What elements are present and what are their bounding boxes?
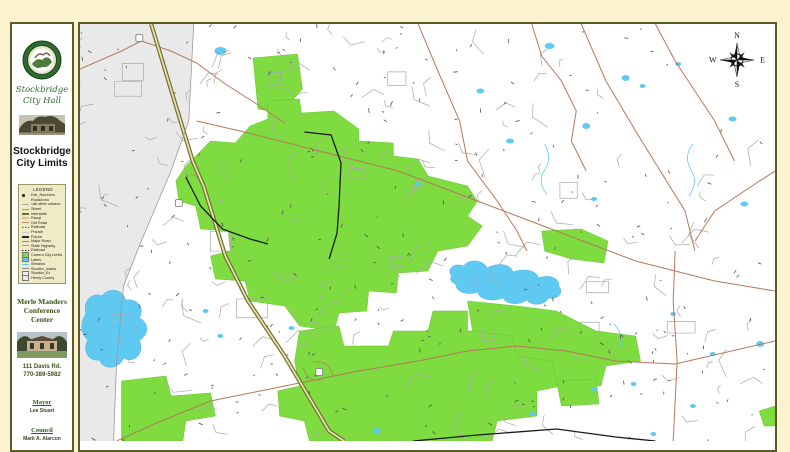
- pond: [582, 123, 590, 129]
- legend-label: Railroad: [31, 248, 45, 252]
- pond: [530, 412, 536, 416]
- legend-symbol-line-icon: [22, 222, 29, 223]
- pond: [729, 117, 737, 122]
- legend-label: Current City Limits: [31, 253, 62, 257]
- pond: [640, 84, 646, 88]
- interstate-shield-icon: [136, 35, 143, 42]
- legend-label: Streams: [31, 262, 45, 266]
- legend-symbol-dash-icon: [22, 250, 29, 251]
- interstate-shield-icon: [316, 369, 323, 376]
- legend-label: Ramp: [31, 216, 41, 220]
- venue-address: 111 Davis Rd. 770-389-5982: [23, 363, 61, 379]
- pond: [203, 309, 209, 313]
- compass-south-label: S: [735, 80, 739, 89]
- venue-name: Merle Manders Conference Center: [12, 297, 72, 324]
- legend-symbol-line-icon: [22, 245, 29, 246]
- legend-symbol-line-icon: [22, 264, 29, 265]
- pond: [214, 47, 226, 55]
- official-mayor: Mayor Lee Stuart: [30, 399, 54, 414]
- legend-symbol-line-icon: [22, 204, 29, 205]
- pond: [373, 428, 381, 434]
- legend-label: Future: [31, 235, 42, 239]
- legend-label: Stockbr_marks: [31, 267, 56, 271]
- legend-label: Interstate: [31, 212, 47, 216]
- legend-label: Henry County: [31, 276, 54, 280]
- legend-item: Henry County: [22, 276, 64, 281]
- legend-label: Lakes: [31, 258, 41, 262]
- interstate-shield-icon: [175, 200, 182, 207]
- official-council: Council Mark A. Alarcon: [23, 427, 61, 442]
- compass-rose: N S E W: [709, 32, 765, 88]
- pond: [631, 382, 637, 386]
- pond: [506, 139, 514, 144]
- legend-symbol-line-icon: [22, 232, 29, 233]
- pond: [217, 334, 223, 338]
- legend-symbol-line-icon: [22, 268, 29, 269]
- city-hall-photo: [19, 115, 65, 135]
- legend-label: Old Road: [31, 221, 47, 225]
- pond: [622, 75, 630, 81]
- legend-symbol-none-icon: [22, 199, 29, 200]
- pond: [476, 89, 484, 94]
- legend-label: State Highway: [31, 244, 55, 248]
- legend-label: Private: [31, 230, 43, 234]
- legend-symbol-thick-icon: [22, 236, 29, 238]
- legend-label: <all other values>: [31, 202, 61, 206]
- legend-label: Street: [31, 207, 41, 211]
- compass-west-label: W: [709, 56, 717, 65]
- pond: [289, 326, 295, 330]
- pond: [591, 197, 597, 201]
- pond: [545, 43, 555, 49]
- legend-symbol-line-icon: [22, 209, 29, 210]
- legend-label: Exit_Numbers: [31, 193, 55, 197]
- legend-title: LEGEND: [22, 187, 64, 192]
- pond: [591, 387, 597, 391]
- pond: [670, 312, 676, 316]
- legend-symbol-thick-icon: [22, 213, 29, 215]
- sidebar-panel: Stockbridge City Hall Stockbridge City L…: [10, 22, 74, 452]
- city-hall-title: Stockbridge City Hall: [16, 85, 68, 107]
- map-panel: N S E W: [78, 22, 777, 452]
- legend-symbol-thick-icon: [22, 217, 29, 219]
- city-limits-polygon: [557, 379, 600, 406]
- legend-label: Stockbr_Ex: [31, 271, 50, 275]
- legend-label: RoadAnno: [31, 198, 49, 202]
- map-title: Stockbridge City Limits: [13, 146, 71, 169]
- map-canvas: [80, 24, 775, 441]
- legend-label: Major Road: [31, 239, 51, 243]
- pond: [650, 432, 656, 436]
- legend-symbol-swatch-icon: [22, 257, 29, 263]
- pond: [740, 202, 748, 207]
- legend-symbol-swatch-icon: [22, 275, 29, 281]
- legend-symbol-dot-icon: [22, 194, 29, 197]
- compass-north-label: N: [734, 31, 740, 40]
- city-seal-icon: [22, 40, 62, 80]
- pond: [690, 404, 696, 408]
- legend-symbol-line-icon: [22, 241, 29, 242]
- legend: LEGEND Exit_NumbersRoadAnno<all other va…: [18, 184, 66, 284]
- conference-center-photo: [17, 332, 67, 358]
- legend-label: Railroad: [31, 225, 45, 229]
- compass-east-label: E: [760, 56, 765, 65]
- legend-symbol-dash-icon: [22, 227, 29, 228]
